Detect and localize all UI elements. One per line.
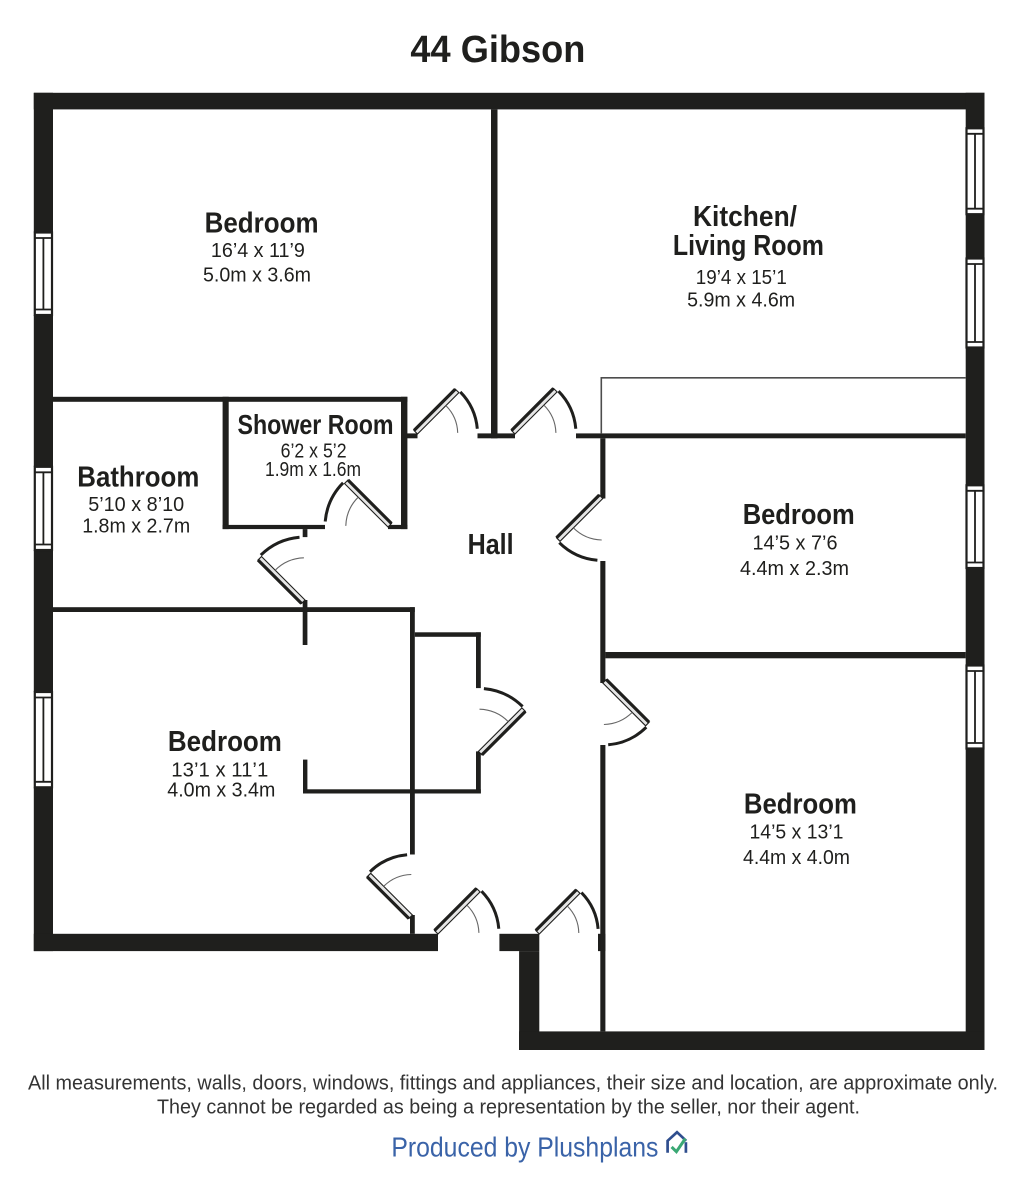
svg-text:14’5 x 13’1: 14’5 x 13’1 — [750, 822, 844, 844]
svg-text:4.4m x 2.3m: 4.4m x 2.3m — [740, 558, 849, 580]
svg-text:Living Room: Living Room — [673, 230, 824, 262]
svg-text:4.4m x 4.0m: 4.4m x 4.0m — [743, 847, 850, 869]
svg-text:13’1 x 11’1: 13’1 x 11’1 — [171, 759, 268, 781]
svg-text:19’4 x 15’1: 19’4 x 15’1 — [696, 267, 787, 289]
svg-text:1.9m x 1.6m: 1.9m x 1.6m — [265, 459, 361, 481]
svg-text:44 Gibson: 44 Gibson — [410, 29, 585, 71]
svg-text:14’5 x 7’6: 14’5 x 7’6 — [753, 533, 838, 555]
svg-text:16’4 x 11’9: 16’4 x 11’9 — [211, 240, 305, 262]
svg-text:Kitchen/: Kitchen/ — [693, 201, 797, 233]
svg-text:They cannot be regarded as bei: They cannot be regarded as being a repre… — [157, 1097, 860, 1119]
svg-text:Bedroom: Bedroom — [168, 726, 282, 758]
svg-text:4.0m x 3.4m: 4.0m x 3.4m — [167, 780, 275, 802]
svg-text:Hall: Hall — [468, 529, 514, 561]
svg-text:Bathroom: Bathroom — [77, 461, 199, 493]
svg-text:5’10 x 8’10: 5’10 x 8’10 — [88, 494, 184, 516]
svg-text:All measurements, walls, doors: All measurements, walls, doors, windows,… — [28, 1073, 998, 1095]
svg-text:Bedroom: Bedroom — [743, 499, 855, 531]
svg-text:Bedroom: Bedroom — [205, 207, 319, 239]
svg-text:5.9m x 4.6m: 5.9m x 4.6m — [687, 290, 795, 312]
svg-text:1.8m x 2.7m: 1.8m x 2.7m — [82, 516, 190, 538]
svg-text:Produced by Plushplans: Produced by Plushplans — [391, 1132, 658, 1163]
svg-text:5.0m x 3.6m: 5.0m x 3.6m — [203, 265, 311, 287]
svg-text:Bedroom: Bedroom — [744, 789, 857, 821]
svg-text:Shower Room: Shower Room — [238, 409, 394, 440]
